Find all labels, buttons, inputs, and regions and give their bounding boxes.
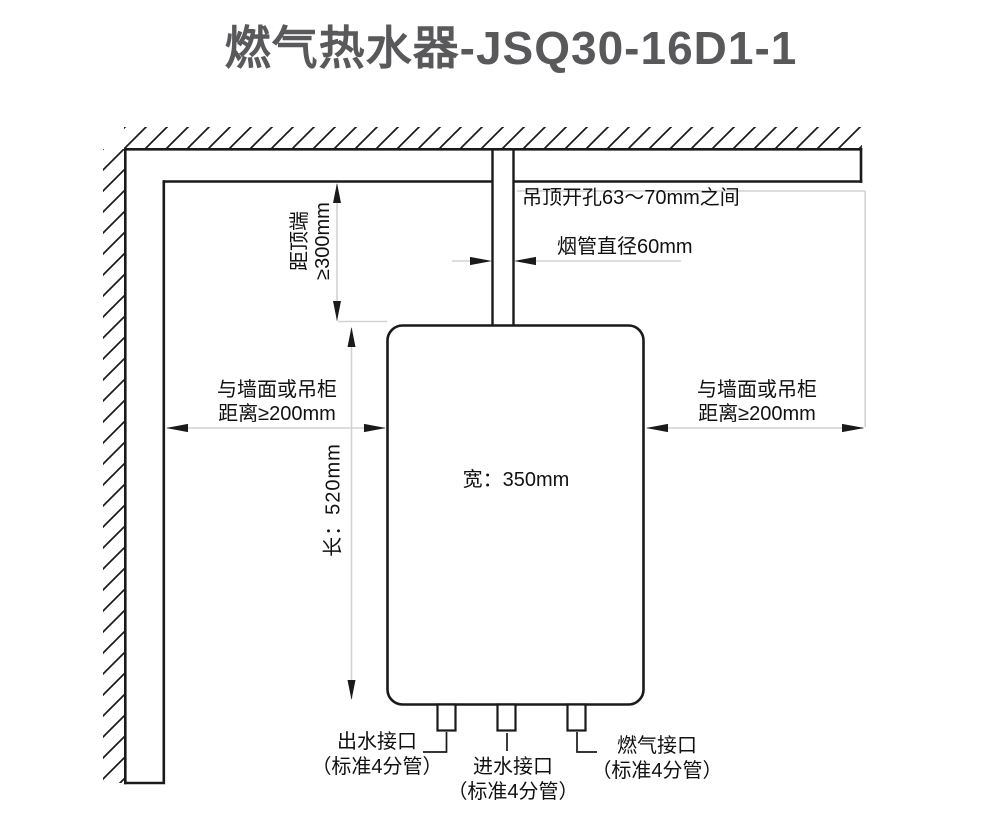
ceiling-hatching — [124, 127, 862, 149]
water-inlet-line2: （标准4分管） — [447, 780, 578, 805]
arrow-down-icon — [348, 680, 356, 700]
flue-pipe — [493, 149, 514, 325]
arrow-left-icon — [514, 257, 536, 265]
flue-diameter-label: 烟管直径60mm — [557, 235, 693, 259]
arrow-right-icon — [470, 257, 492, 265]
top-clearance-line2: ≥300mm — [312, 202, 335, 280]
gas-inlet-line1: 燃气接口 — [591, 734, 722, 759]
arrow-left-icon — [166, 424, 188, 432]
left-clearance-line1: 与墙面或吊柜 — [217, 378, 337, 402]
water-heater-body — [388, 326, 644, 705]
wall-hatching — [103, 149, 124, 783]
page-title: 燃气热水器-JSQ30-16D1-1 — [225, 12, 798, 78]
arrow-right-icon — [364, 424, 386, 432]
right-clearance-label: 与墙面或吊柜 距离≥200mm — [697, 378, 817, 426]
label-leaders — [423, 732, 597, 752]
arrow-right-icon — [842, 424, 865, 432]
body-width-label: 宽：350mm — [463, 468, 570, 492]
left-clearance-label: 与墙面或吊柜 距离≥200mm — [217, 378, 337, 426]
right-clearance-line2: 距离≥200mm — [697, 402, 817, 426]
right-clearance-line1: 与墙面或吊柜 — [697, 378, 817, 402]
gas-inlet-label: 燃气接口 （标准4分管） — [591, 734, 722, 784]
top-clearance-label: 距顶端 ≥300mm — [289, 202, 335, 280]
water-outlet-connector — [438, 705, 456, 731]
water-inlet-connector — [498, 705, 516, 731]
arrow-up-icon — [348, 327, 356, 347]
water-outlet-label: 出水接口 （标准4分管） — [311, 730, 442, 780]
installation-diagram-canvas: 燃气热水器-JSQ30-16D1-1 吊顶开孔63～70mm之间 烟管直径60m… — [0, 0, 1000, 821]
water-inlet-label: 进水接口 （标准4分管） — [447, 755, 578, 805]
diagram-linework — [0, 0, 1000, 821]
ceiling-hole-label: 吊顶开孔63～70mm之间 — [522, 186, 740, 210]
gas-inlet-connector — [568, 705, 586, 731]
flue-pipe-walls — [493, 149, 514, 325]
wall-inner-edge — [125, 182, 164, 784]
top-clearance-line1: 距顶端 — [289, 202, 312, 280]
arrow-left-icon — [646, 424, 668, 432]
bottom-connectors — [438, 705, 586, 731]
body-length-label: 长：520mm — [323, 443, 346, 557]
gas-inlet-line2: （标准4分管） — [591, 759, 722, 784]
left-clearance-line2: 距离≥200mm — [217, 402, 337, 426]
water-outlet-line1: 出水接口 — [311, 730, 442, 755]
arrow-down-icon — [333, 301, 341, 321]
arrow-up-icon — [333, 183, 341, 203]
water-inlet-line1: 进水接口 — [447, 755, 578, 780]
water-outlet-line2: （标准4分管） — [311, 755, 442, 780]
